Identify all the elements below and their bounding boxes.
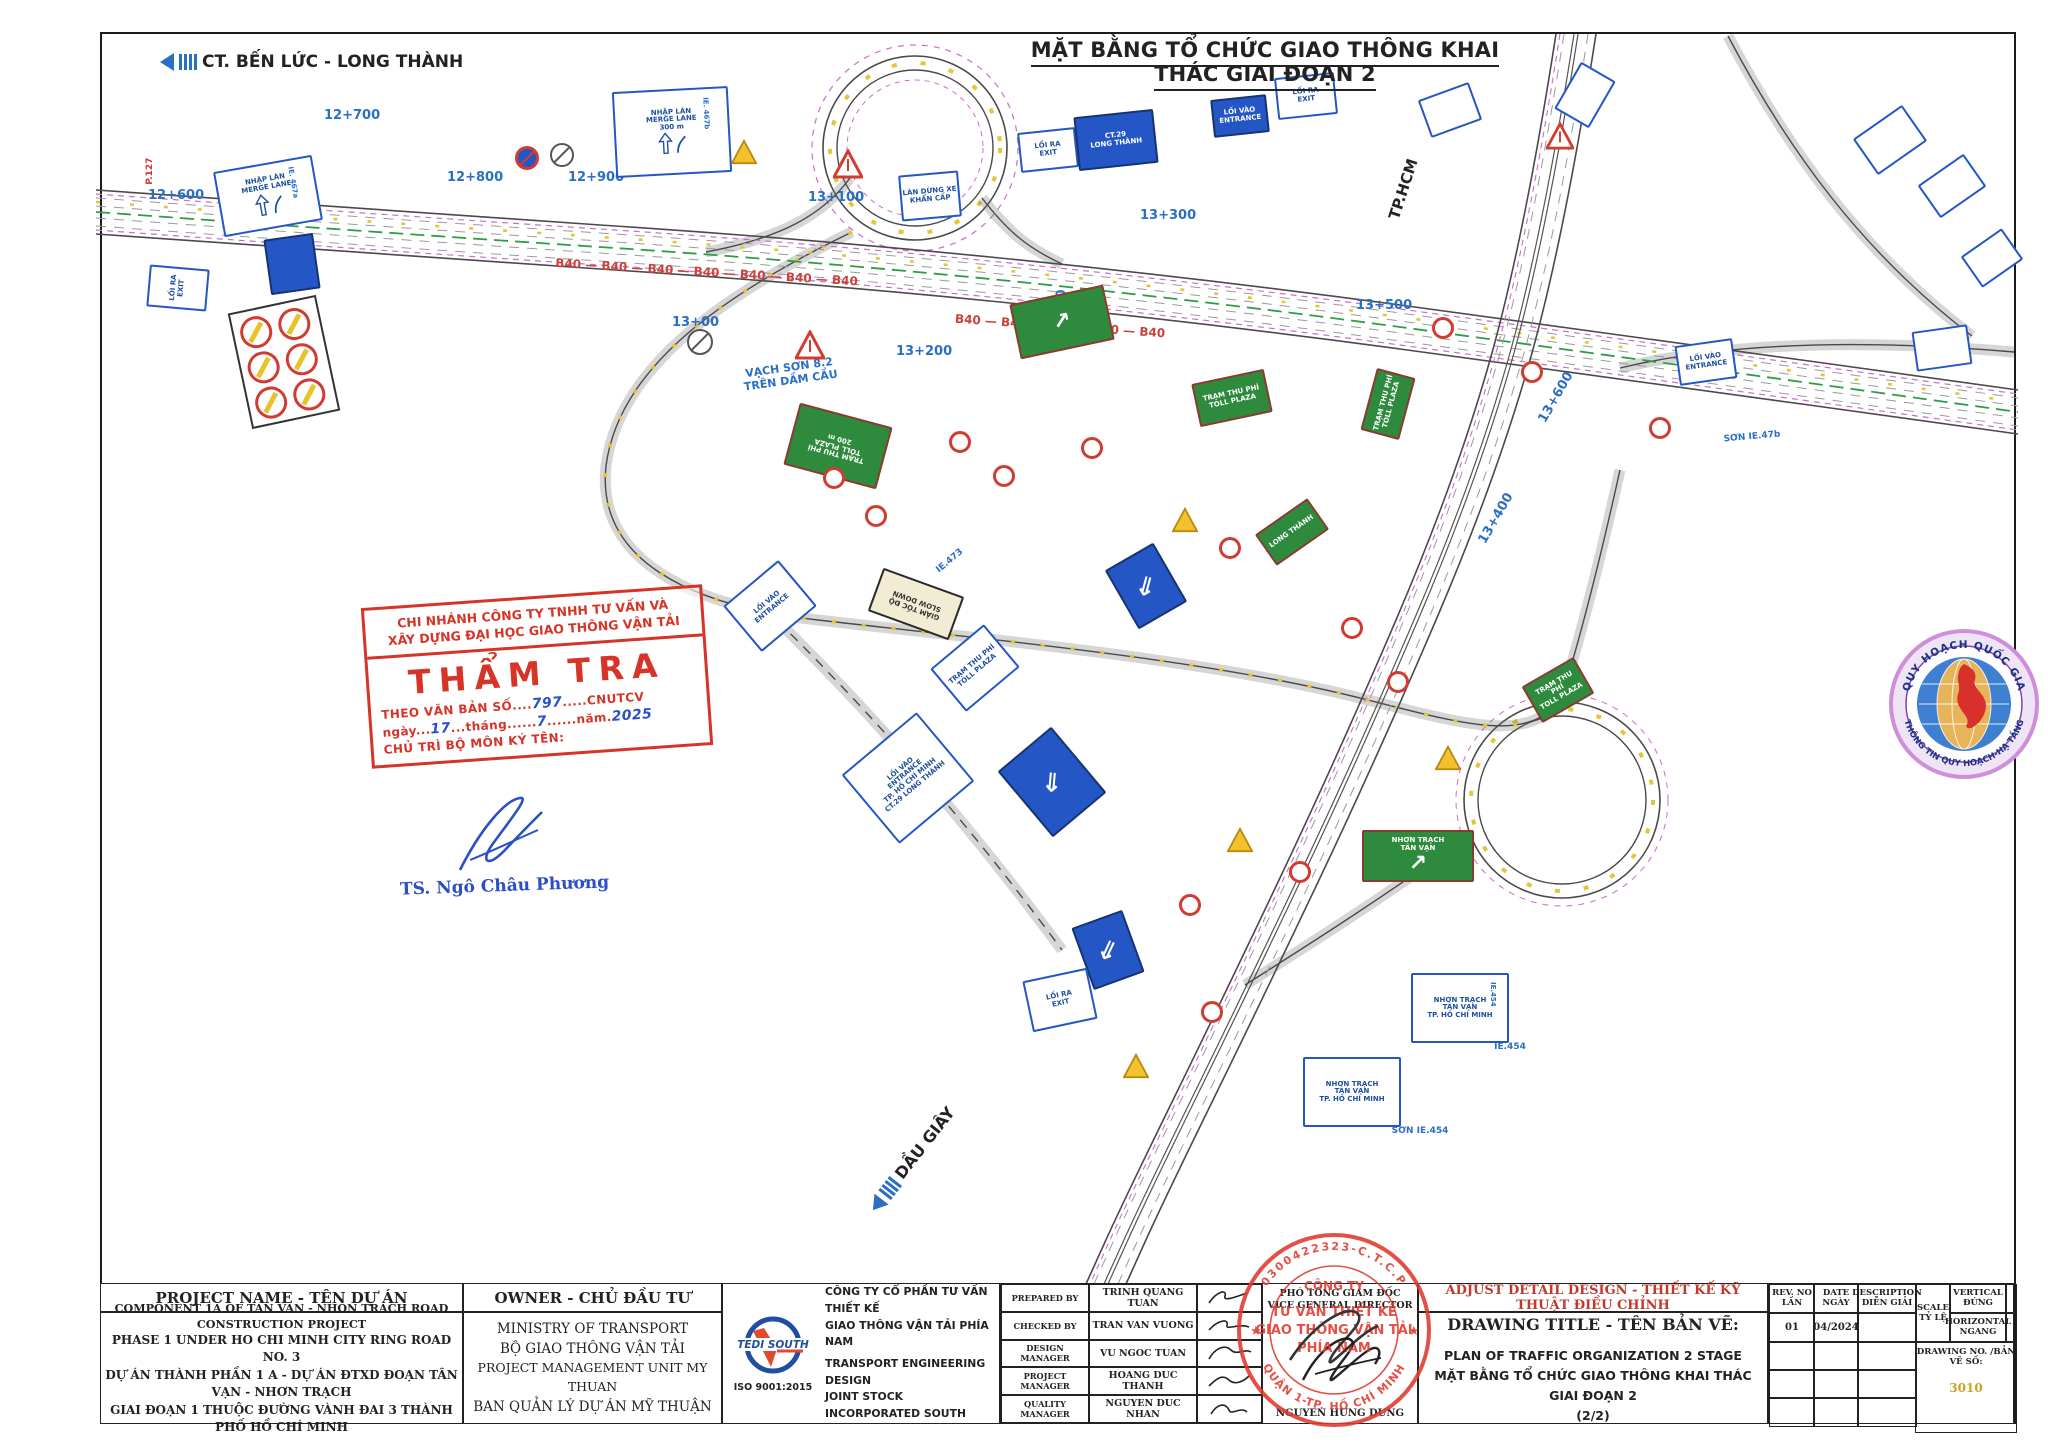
- traffic-sign-b: NHƠN TRẠCHTÂN VẠNTP. HỒ CHÍ MINH: [1303, 1057, 1401, 1127]
- titleblock-cell: [2005, 1312, 2017, 1343]
- approval-role: DESIGN MANAGER: [1001, 1340, 1089, 1368]
- traffic-sign-b: LỐI VÀOENTRANCE: [1674, 338, 1737, 386]
- traffic-sign-rc: [823, 467, 845, 489]
- titleblock-cell: VERTICALĐỨNG: [1949, 1284, 2007, 1314]
- chainage-label: 12+700: [324, 108, 380, 123]
- sign-text: TP. HỒ CHÍ MINH: [1427, 1012, 1492, 1020]
- yield-triangle-icon: [1172, 507, 1198, 533]
- stamp-date-day: 17: [430, 720, 451, 737]
- sign-text: EXIT: [1051, 998, 1070, 1009]
- traffic-sign-b: [1911, 324, 1972, 371]
- tedi-south-logo: TEDI SOUTH: [737, 1315, 809, 1379]
- chainage-label: 13+100: [808, 190, 864, 205]
- chainage-label: 13+500: [1356, 298, 1412, 313]
- approval-role: PROJECT MANAGER: [1001, 1367, 1089, 1395]
- traffic-sign-rc: [1387, 671, 1409, 693]
- exit-arrow-icon: ↗: [1051, 309, 1074, 334]
- company-stamp-line1: CÔNG TY: [1304, 1278, 1364, 1293]
- drawing-title-line2: MẶT BẰNG TỔ CHỨC GIAO THÔNG KHAI THÁC GI…: [1419, 1366, 1767, 1406]
- company-line-1: CÔNG TY CỔ PHẦN TƯ VẤN THIẾT KẾ: [825, 1284, 995, 1317]
- titleblock-project-body: COMPONENT 1A OF TAN VAN - NHON TRACH ROA…: [100, 1312, 463, 1424]
- traffic-sign-rc: [993, 465, 1015, 487]
- sign-text: EXIT: [177, 279, 186, 297]
- traffic-sign-wt: [1546, 122, 1574, 150]
- titleblock-cell: [1857, 1397, 1917, 1427]
- yield-triangle-icon: [1123, 1053, 1149, 1079]
- traffic-sign-nb: [515, 146, 539, 170]
- approval-name: TRAN VAN VUONG: [1089, 1312, 1197, 1340]
- traffic-sign-rc: [949, 431, 971, 453]
- sign-text: KHẨN CẤP: [910, 194, 951, 205]
- titleblock-rev-table: REV. NOLẦNDATENGÀYDESCRIPTIONDIỄN GIẢI01…: [1768, 1283, 2014, 1424]
- titleblock-company: TEDI SOUTH ISO 9001:2015 CÔNG TY CỔ PHẦN…: [722, 1283, 1000, 1424]
- traffic-sign-yt: [1172, 507, 1198, 533]
- company-iso-text: ISO 9001:2015: [734, 1382, 812, 1393]
- traffic-sign-bf: LỐI VÀOENTRANCE: [1210, 94, 1270, 138]
- page-title: MẶT BẰNG TỔ CHỨC GIAO THÔNG KHAI THÁC GI…: [1015, 38, 1515, 86]
- drawing-red-header: ADJUST DETAIL DESIGN - THIẾT KẾ KỸ THUẬT…: [1419, 1283, 1767, 1313]
- yield-triangle-icon: [1227, 827, 1253, 853]
- chainage-label: 13+300: [1140, 208, 1196, 223]
- tedi-logo-text: TEDI SOUTH: [737, 1339, 809, 1351]
- traffic-sign-b: LỐI RAEXIT: [146, 264, 209, 311]
- project-line-1: COMPONENT 1A OF TAN VAN - NHON TRACH ROA…: [101, 1300, 462, 1332]
- titleblock-cell: [1857, 1312, 1917, 1343]
- prohibition-sign-icon: [252, 384, 290, 422]
- traffic-sign-rc: [1289, 861, 1311, 883]
- lane-arrow-icon: ⇙: [1093, 934, 1122, 966]
- drawing-title-line1: PLAN OF TRAFFIC ORGANIZATION 2 STAGE: [1419, 1346, 1767, 1366]
- yield-triangle-icon: [731, 139, 757, 165]
- project-line-3: DỰ ÁN THÀNH PHẦN 1 A - DỰ ÁN ĐTXD ĐOẠN T…: [101, 1367, 462, 1402]
- approval-role: CHECKED BY: [1001, 1312, 1089, 1340]
- route-bars-icon: [179, 54, 197, 70]
- titleblock-cell: [1769, 1397, 1815, 1427]
- owner-line-1: MINISTRY OF TRANSPORT: [497, 1319, 688, 1339]
- project-line-2: PHASE 1 UNDER HO CHI MINH CITY RING ROAD…: [101, 1332, 462, 1367]
- svg-text:QUẬN 1-TP. HỒ CHÍ MINH: QUẬN 1-TP. HỒ CHÍ MINH: [1260, 1361, 1408, 1413]
- traffic-sign-bf: [263, 233, 320, 295]
- traffic-sign-rc: [1219, 537, 1241, 559]
- sign-text: ENTRANCE: [1219, 114, 1262, 126]
- sign-text: EXIT: [1039, 149, 1057, 158]
- traffic-sign-yt: [1435, 745, 1461, 771]
- traffic-sign-g: NHƠN TRẠCHTÂN VẠN↗: [1362, 830, 1474, 882]
- star-icon: ★: [1250, 1324, 1262, 1339]
- titleblock-cell: [1769, 1369, 1815, 1399]
- drawing-sheet: MẶT BẰNG TỔ CHỨC GIAO THÔNG KHAI THÁC GI…: [0, 0, 2048, 1448]
- titleblock-approvals: PREPARED BYTRINH QUANG TUANCHECKED BYTRA…: [1000, 1283, 1262, 1424]
- no-stopping-slash-icon: [519, 150, 535, 166]
- owner-header-text: OWNER - CHỦ ĐẦU TƯ: [495, 1289, 691, 1307]
- plan-annotation: SƠN IE.454: [1270, 1126, 1570, 1136]
- company-name-block: CÔNG TY CỔ PHẦN TƯ VẤN THIẾT KẾ GIAO THÔ…: [825, 1284, 995, 1423]
- titleblock-cell: [1813, 1341, 1859, 1371]
- project-line-4: GIAI ĐOẠN 1 THUỘC ĐƯỜNG VÀNH ĐAI 3 THÀNH…: [101, 1402, 462, 1437]
- approval-role: QUALITY MANAGER: [1001, 1395, 1089, 1423]
- titleblock-cell: [1857, 1341, 1917, 1371]
- route-label-text: CT. BẾN LỨC - LONG THÀNH: [202, 52, 463, 72]
- approval-name: VU NGOC TUAN: [1089, 1340, 1197, 1368]
- route-label-benluc: CT. BẾN LỨC - LONG THÀNH: [160, 52, 463, 72]
- traffic-sign-yt: [1227, 827, 1253, 853]
- prohibition-sign-icon: [283, 340, 321, 378]
- plan-annotation: IE.454: [1360, 1042, 1660, 1052]
- traffic-sign-rc: [1179, 894, 1201, 916]
- titleblock-cell: HORIZONTALNGANG: [1949, 1312, 2007, 1343]
- owner-line-2: BỘ GIAO THÔNG VẬN TẢI: [500, 1339, 685, 1359]
- company-stamp-line3: GIAO THÔNG VẬN TẢI: [1255, 1321, 1412, 1338]
- prohibition-sign-icon: [245, 348, 283, 386]
- chainage-label: 13+00: [672, 315, 719, 330]
- verification-stamp: CHI NHÁNH CÔNG TY TNHH TƯ VẤN VÀ XÂY DỰN…: [361, 584, 713, 768]
- traffic-sign-rc: [1081, 437, 1103, 459]
- planning-seal-logo: QUY HOẠCH QUỐC GIA THÔNG TIN QUY HOẠCH-H…: [1888, 628, 2040, 780]
- stamp-date-pre: ngày...: [382, 722, 431, 739]
- lane-arrow-icon: ⇙: [1035, 765, 1068, 799]
- company-line-3: TRANSPORT ENGINEERING DESIGN: [825, 1356, 995, 1389]
- approval-role: PREPARED BY: [1001, 1284, 1089, 1312]
- titleblock-cell: SCALETỶ LỆ: [1915, 1284, 1951, 1343]
- titleblock-cell: [1857, 1369, 1917, 1399]
- traffic-sign-wt: [833, 149, 863, 179]
- sign-text: TP. HỒ CHÍ MINH: [1319, 1096, 1384, 1104]
- prohibition-sign-icon: [290, 375, 328, 413]
- company-logo-block: TEDI SOUTH ISO 9001:2015: [727, 1315, 819, 1393]
- yield-triangle-icon: [1435, 745, 1461, 771]
- traffic-sign-yt: [1123, 1053, 1149, 1079]
- traffic-sign-wt: [795, 330, 825, 360]
- merge-arrows-icon: [657, 131, 688, 157]
- star-icon: ★: [1408, 1324, 1420, 1339]
- company-line-2: GIAO THÔNG VẬN TẢI PHÍA NAM: [825, 1318, 995, 1351]
- traffic-sign-b: LÀN DỪNG XEKHẨN CẤP: [898, 170, 962, 221]
- company-line-4: JOINT STOCK INCORPORATED SOUTH: [825, 1389, 995, 1422]
- route-arrow-icon: [160, 53, 174, 71]
- end-restriction-slash-icon: [553, 146, 571, 164]
- titleblock-cell: [1769, 1341, 1815, 1371]
- traffic-sign-bf: CT.29LONG THÀNH: [1073, 109, 1158, 171]
- warning-triangle-icon: [1546, 122, 1574, 150]
- titleblock-cell: 01: [1769, 1312, 1815, 1343]
- traffic-sign-rc: [1341, 617, 1363, 639]
- warning-triangle-icon: [833, 149, 863, 179]
- titleblock-cell: 04/2024: [1813, 1312, 1859, 1343]
- approval-name: NGUYEN DUC NHAN: [1089, 1395, 1197, 1423]
- sign-code-label: IE. 467a: [286, 166, 299, 199]
- traffic-sign-rc: [865, 505, 887, 527]
- titleblock-cell: [1813, 1369, 1859, 1399]
- drawing-no-label: DRAWING NO. /BẢN VẼ SỐ:: [1916, 1348, 2016, 1368]
- prohibition-sign-icon: [237, 313, 275, 351]
- sign-text: LONG THÀNH: [1090, 137, 1142, 150]
- titleblock-drawing-redheader: ADJUST DETAIL DESIGN - THIẾT KẾ KỸ THUẬT…: [1418, 1283, 1768, 1312]
- sign-code-label: IE. 467b: [701, 97, 710, 129]
- titleblock-cell: [2005, 1284, 2017, 1314]
- end-restriction-slash-icon: [690, 332, 710, 352]
- lane-arrow-icon: ⇙: [1130, 569, 1162, 602]
- sign-code-label: IE.454: [1489, 982, 1497, 1007]
- traffic-sign-yt: [731, 139, 757, 165]
- traffic-sign-gc: [687, 329, 713, 355]
- titleblock-owner-body: MINISTRY OF TRANSPORT BỘ GIAO THÔNG VẬN …: [463, 1312, 722, 1424]
- traffic-sign-rc: [1432, 317, 1454, 339]
- approval-name: TRINH QUANG TUAN: [1089, 1284, 1197, 1312]
- titleblock-cell: DRAWING NO. /BẢN VẼ SỐ: 3010: [1915, 1341, 2017, 1433]
- prohibition-sign-icon: [275, 305, 313, 343]
- exit-arrow-icon: ↗: [1409, 853, 1427, 875]
- titleblock-owner-header: OWNER - CHỦ ĐẦU TƯ: [463, 1283, 722, 1312]
- traffic-sign-b: LỐI RAEXIT: [1017, 127, 1079, 173]
- approval-name: HOANG DUC THANH: [1089, 1367, 1197, 1395]
- titleblock-cell: REV. NOLẦN: [1769, 1284, 1815, 1314]
- chainage-label: 12+600: [148, 188, 204, 203]
- drawing-title-line3: (2/2): [1419, 1406, 1767, 1426]
- warning-triangle-icon: [795, 330, 825, 360]
- traffic-sign-rc: [1521, 361, 1543, 383]
- traffic-sign-rc: [1649, 417, 1671, 439]
- titleblock-cell: DESCRIPTIONDIỄN GIẢI: [1857, 1284, 1917, 1314]
- company-stamp-arc-bottom: QUẬN 1-TP. HỒ CHÍ MINH: [1260, 1361, 1408, 1413]
- sign-text: EXIT: [1297, 95, 1315, 104]
- owner-line-4: BAN QUẢN LÝ DỰ ÁN MỸ THUẬN: [473, 1397, 711, 1417]
- traffic-sign-b: NHẬP LÀNMERGE LANE300 mIE. 467b: [612, 86, 732, 178]
- stamp-doc-no: 797: [531, 694, 562, 712]
- stamp-date-year: 2025: [611, 706, 653, 725]
- traffic-sign-rc: [1201, 1001, 1223, 1023]
- company-round-stamp: 0300422323-C.T.C.P QUẬN 1-TP. HỒ CHÍ MIN…: [1232, 1228, 1436, 1432]
- drawing-title-label: DRAWING TITLE - TÊN BẢN VẼ:: [1447, 1315, 1739, 1334]
- page-title-text: MẶT BẰNG TỔ CHỨC GIAO THÔNG KHAI THÁC GI…: [1031, 38, 1500, 91]
- traffic-sign-b: NHƠN TRẠCHTÂN VẠNTP. HỒ CHÍ MINHIE.454: [1411, 973, 1509, 1043]
- drawing-no-value: 3010: [1949, 1382, 1982, 1396]
- titleblock-drawing-title: DRAWING TITLE - TÊN BẢN VẼ: PLAN OF TRAF…: [1418, 1312, 1768, 1424]
- owner-line-3: PROJECT MANAGEMENT UNIT MY THUAN: [464, 1359, 721, 1397]
- traffic-sign-gc: [550, 143, 574, 167]
- merge-arrows-icon: [252, 189, 286, 218]
- titleblock-cell: [1813, 1397, 1859, 1427]
- chainage-label: 12+800: [447, 170, 503, 185]
